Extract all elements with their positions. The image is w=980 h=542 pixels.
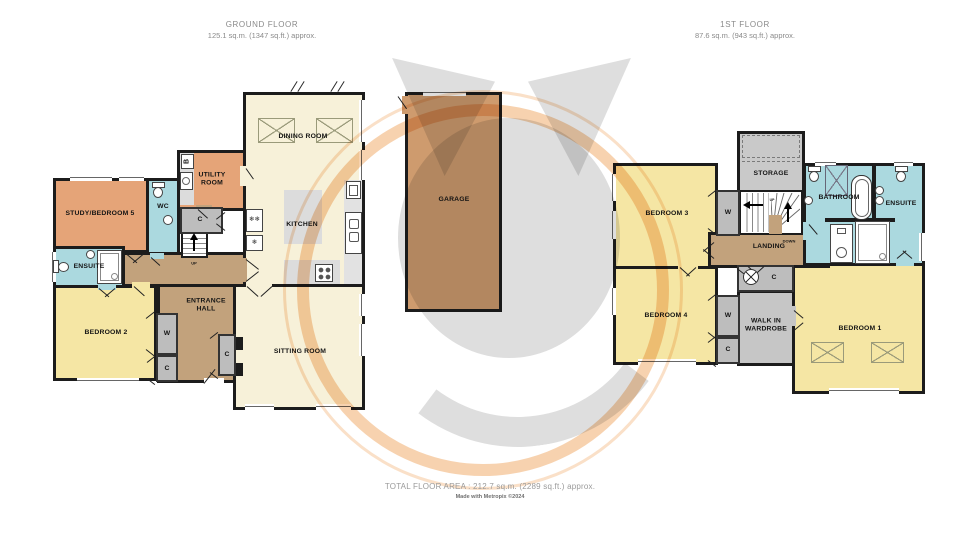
window <box>359 150 365 180</box>
cylinder-icon <box>743 269 759 285</box>
shower-cubicle-icon <box>855 221 890 264</box>
boiler-icon: B <box>181 154 194 169</box>
label-c1-first: C <box>771 274 776 282</box>
door-gap <box>246 281 272 287</box>
total-floor-area: TOTAL FLOOR AREA : 212.7 sq.m. (2289 sq.… <box>330 482 650 491</box>
label-bedroom4: BEDROOM 4 <box>645 312 688 320</box>
label-ensuite-ground: ENSUITE <box>74 263 105 271</box>
wall-break-mark <box>297 81 304 92</box>
footer: TOTAL FLOOR AREA : 212.7 sq.m. (2289 sq.… <box>330 482 650 500</box>
label-c3: C <box>224 351 229 359</box>
floorplan-page: GROUND FLOOR 125.1 sq.m. (1347 sq.ft.) a… <box>0 0 980 542</box>
landing-strip <box>769 215 782 234</box>
window <box>610 288 616 315</box>
boiler-label: B <box>183 159 192 164</box>
window <box>638 359 696 365</box>
sink-icon <box>86 250 95 259</box>
utility-sink-bowl <box>182 177 190 185</box>
label-kitchen: KITCHEN <box>286 221 318 229</box>
fridge-freezer-icon: ❄❄ <box>246 209 263 232</box>
fridge-icon: ❄ <box>246 235 263 251</box>
storage-dashed-line <box>742 161 800 162</box>
label-utility: UTILITY ROOM <box>198 172 225 189</box>
vanity-sink-icon <box>830 224 853 263</box>
window <box>423 90 466 96</box>
window <box>359 324 365 356</box>
stairs-up-arrowhead <box>743 201 750 209</box>
sink-icon <box>163 215 173 225</box>
hob-icon <box>315 264 333 282</box>
toilet-icon <box>53 261 69 273</box>
label-sitting: SITTING ROOM <box>274 348 326 356</box>
label-landing: LANDING <box>753 243 785 251</box>
first-floor-header: 1ST FLOOR 87.6 sq.m. (943 sq.ft.) approx… <box>635 20 855 40</box>
sink-icon <box>875 196 884 205</box>
skylight-icon <box>871 342 904 363</box>
window <box>359 100 365 142</box>
label-w1: W <box>164 330 171 338</box>
label-ensuite-first: ENSUITE <box>886 200 917 208</box>
label-bathroom: BATHROOM <box>818 194 859 202</box>
stairs-treads <box>742 193 769 232</box>
sink-icon <box>804 196 813 205</box>
oven-icon <box>346 181 361 199</box>
stairs-down-arrowhead <box>784 202 792 209</box>
first-floor-title: 1ST FLOOR <box>635 20 855 29</box>
label-garage: GARAGE <box>438 196 469 204</box>
toilet-icon <box>808 166 820 182</box>
label-study: STUDY/BEDROOM 5 <box>65 210 134 218</box>
storage-dashed-area <box>742 135 800 158</box>
sink-icon <box>875 186 884 195</box>
stairs-up-arrowhead <box>190 233 198 240</box>
stairs-down-arrow <box>787 207 789 222</box>
label-w2-first: W <box>725 312 732 320</box>
door-gap <box>241 258 247 282</box>
shower-icon <box>825 165 848 196</box>
label-up-ground: UP <box>191 261 197 266</box>
window <box>70 175 112 181</box>
label-storage: STORAGE <box>754 170 789 178</box>
label-c2: C <box>164 365 169 373</box>
label-dining: DINING ROOM <box>278 133 327 141</box>
label-hall: ENTRANCE HALL <box>186 298 225 315</box>
label-bedroom3: BEDROOM 3 <box>646 210 689 218</box>
door-gap <box>790 306 796 326</box>
toilet-icon <box>152 182 164 198</box>
toilet-icon <box>895 166 907 182</box>
ground-floor-header: GROUND FLOOR 125.1 sq.m. (1347 sq.ft.) a… <box>152 20 372 40</box>
first-floor-area: 87.6 sq.m. (943 sq.ft.) approx. <box>635 31 855 40</box>
window <box>610 211 616 239</box>
label-c1: C <box>197 216 202 224</box>
label-up-first: UP <box>770 198 775 202</box>
label-walkin: WALK IN WARDROBE <box>745 318 787 335</box>
window <box>919 233 925 261</box>
window <box>245 404 274 410</box>
window <box>119 175 144 181</box>
metropix-fox-ear-icon <box>528 58 633 176</box>
window <box>77 378 139 384</box>
label-wc: WC <box>157 203 169 211</box>
label-down-first: DOWN <box>783 239 796 244</box>
window <box>829 388 899 394</box>
window <box>316 404 351 410</box>
stairs-up-arrow <box>748 204 763 206</box>
label-bedroom2: BEDROOM 2 <box>85 329 128 337</box>
wall-break-mark <box>337 81 344 92</box>
label-c2-first: C <box>725 346 730 354</box>
skylight-icon <box>811 342 844 363</box>
kitchen-floor-patch <box>284 190 322 244</box>
ground-floor-area: 125.1 sq.m. (1347 sq.ft.) approx. <box>152 31 372 40</box>
label-w1-first: W <box>725 209 732 217</box>
kitchen-sink-icon <box>345 212 362 254</box>
metropix-credit: Made with Metropix ©2024 <box>330 494 650 500</box>
ground-floor-title: GROUND FLOOR <box>152 20 372 29</box>
label-bedroom1: BEDROOM 1 <box>839 325 882 333</box>
door-gap <box>896 260 914 266</box>
window <box>359 294 365 316</box>
window <box>610 174 616 201</box>
